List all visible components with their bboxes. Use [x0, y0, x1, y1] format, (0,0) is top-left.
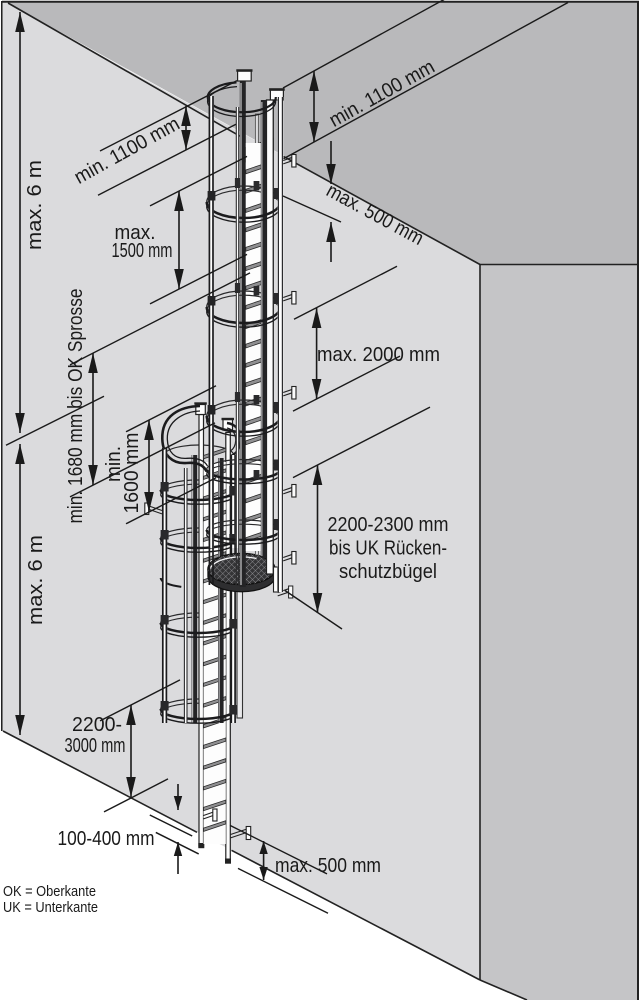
- svg-text:UK = Unterkante: UK = Unterkante: [3, 899, 98, 916]
- svg-text:max. 6 m: max. 6 m: [25, 535, 47, 625]
- svg-text:100-400 mm: 100-400 mm: [58, 828, 155, 850]
- svg-text:1500 mm: 1500 mm: [112, 240, 173, 262]
- svg-text:bis UK Rücken-: bis UK Rücken-: [329, 538, 447, 560]
- svg-text:3000 mm: 3000 mm: [65, 735, 126, 757]
- svg-text:min. 1680 mm bis OK Sprosse: min. 1680 mm bis OK Sprosse: [65, 289, 87, 524]
- svg-text:1600 mm: 1600 mm: [121, 433, 143, 514]
- svg-text:schutzbügel: schutzbügel: [339, 561, 437, 583]
- svg-text:2200-: 2200-: [72, 714, 122, 736]
- svg-text:OK = Oberkante: OK = Oberkante: [3, 883, 96, 900]
- svg-text:max. 6 m: max. 6 m: [24, 160, 46, 250]
- svg-text:max. 2000 mm: max. 2000 mm: [317, 344, 440, 366]
- svg-text:max. 500 mm: max. 500 mm: [275, 855, 381, 877]
- svg-text:2200-2300 mm: 2200-2300 mm: [328, 514, 449, 536]
